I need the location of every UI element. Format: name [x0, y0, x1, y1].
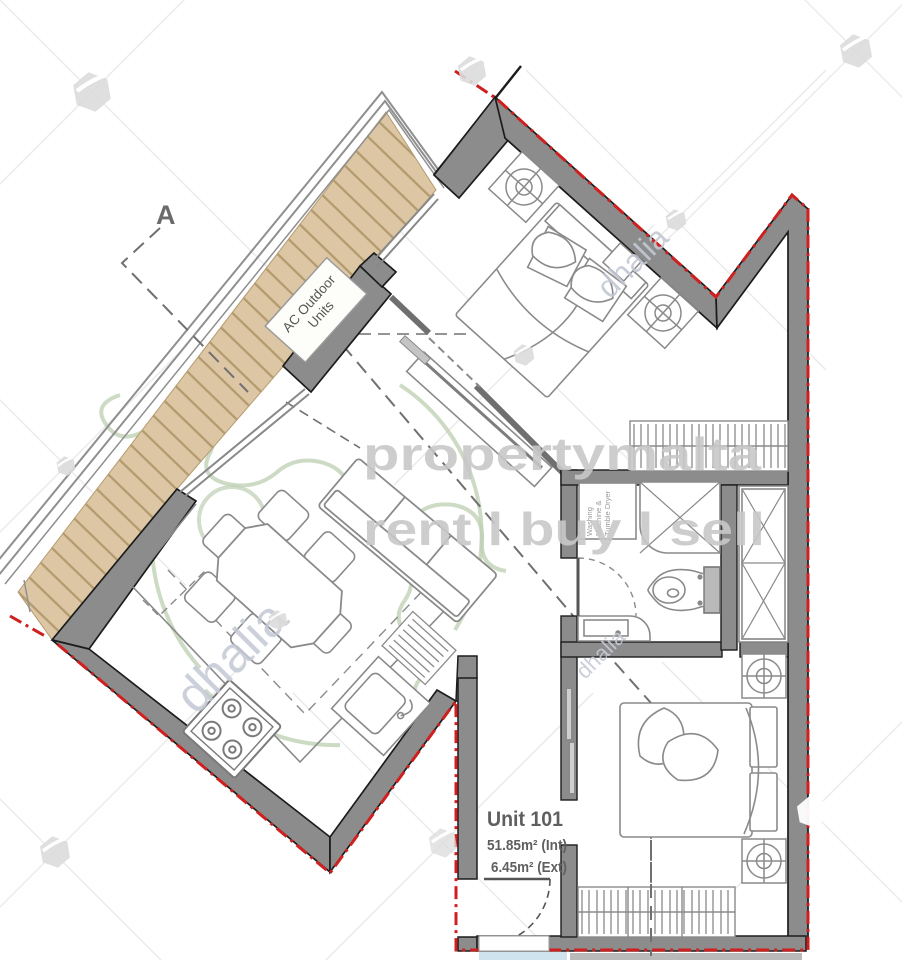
svg-text:rent l buy l sell: rent l buy l sell [363, 503, 765, 555]
svg-text:6.45m² (Ext): 6.45m² (Ext) [491, 860, 567, 876]
svg-text:Unit 101: Unit 101 [487, 808, 563, 831]
svg-text:propertymalta: propertymalta [363, 428, 762, 480]
svg-text:51.85m² (Int): 51.85m² (Int) [487, 838, 567, 854]
svg-text:A: A [156, 200, 176, 230]
